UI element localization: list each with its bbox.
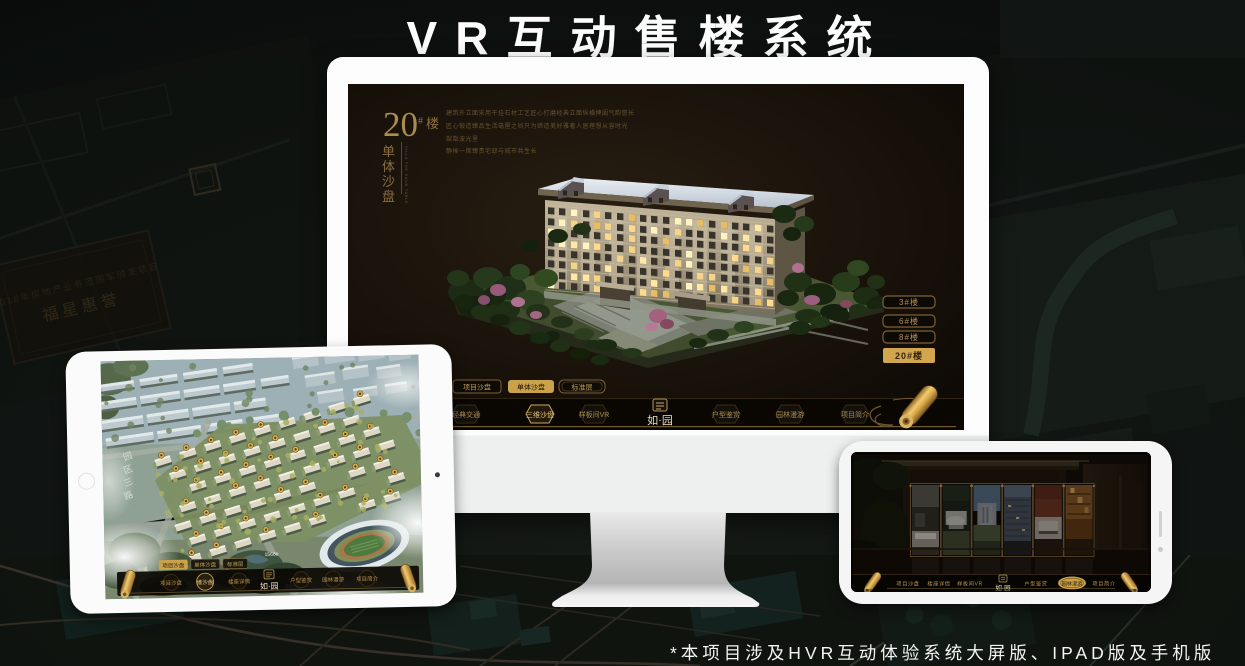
- svg-text:标准层: 标准层: [572, 383, 593, 392]
- svg-text:单体沙盘: 单体沙盘: [517, 383, 545, 392]
- svg-text:20#楼: 20#楼: [895, 350, 923, 361]
- svg-text:项目沙盘: 项目沙盘: [896, 580, 919, 588]
- svg-text:#: #: [418, 116, 423, 127]
- svg-text:静候一席臻贵宅邸与城市共生长: 静候一席臻贵宅邸与城市共生长: [446, 147, 537, 155]
- svg-text:项目简介: 项目简介: [1092, 580, 1115, 588]
- svg-text:如·园: 如·园: [647, 413, 673, 427]
- svg-text:样板间VR: 样板间VR: [957, 580, 983, 588]
- svg-text:园林漫游: 园林漫游: [776, 410, 804, 419]
- svg-text:楼: 楼: [426, 116, 439, 131]
- svg-text:单: 单: [382, 144, 395, 159]
- svg-text:粼粼波光里: 粼粼波光里: [446, 135, 479, 143]
- svg-text:盘: 盘: [382, 189, 395, 204]
- svg-text:如·园: 如·园: [260, 581, 279, 591]
- svg-text:建筑外立面采用干挂石材工艺匠心打磨经典立面纵横捭阖气韵悠长: 建筑外立面采用干挂石材工艺匠心打磨经典立面纵横捭阖气韵悠长: [446, 109, 635, 117]
- svg-text:沙: 沙: [382, 174, 395, 189]
- svg-text:1566#: 1566#: [265, 552, 279, 558]
- svg-text:户型鉴赏: 户型鉴赏: [712, 410, 740, 419]
- svg-text:楼座详情: 楼座详情: [927, 580, 950, 588]
- svg-text:项目沙盘: 项目沙盘: [463, 383, 491, 392]
- svg-text:项目简介: 项目简介: [841, 410, 869, 419]
- svg-text:经典交通: 经典交通: [452, 410, 480, 419]
- svg-text:户型鉴赏: 户型鉴赏: [1024, 580, 1047, 588]
- svg-text:三维沙盘: 三维沙盘: [526, 410, 554, 419]
- svg-text:匠心锻造臻品生活毫厘之间只为缔造美好雅奢人居理想从容时光: 匠心锻造臻品生活毫厘之间只为缔造美好雅奢人居理想从容时光: [446, 122, 628, 130]
- svg-text:VILLA THE SAND TABLE: VILLA THE SAND TABLE: [404, 146, 408, 204]
- svg-text:3#楼: 3#楼: [899, 297, 919, 307]
- svg-text:样板间VR: 样板间VR: [579, 410, 610, 419]
- svg-text:8#楼: 8#楼: [899, 332, 919, 342]
- svg-text:体: 体: [382, 159, 395, 174]
- svg-text:20: 20: [383, 105, 418, 144]
- svg-text:园林漫游: 园林漫游: [1062, 580, 1083, 588]
- svg-text:6#楼: 6#楼: [899, 316, 919, 326]
